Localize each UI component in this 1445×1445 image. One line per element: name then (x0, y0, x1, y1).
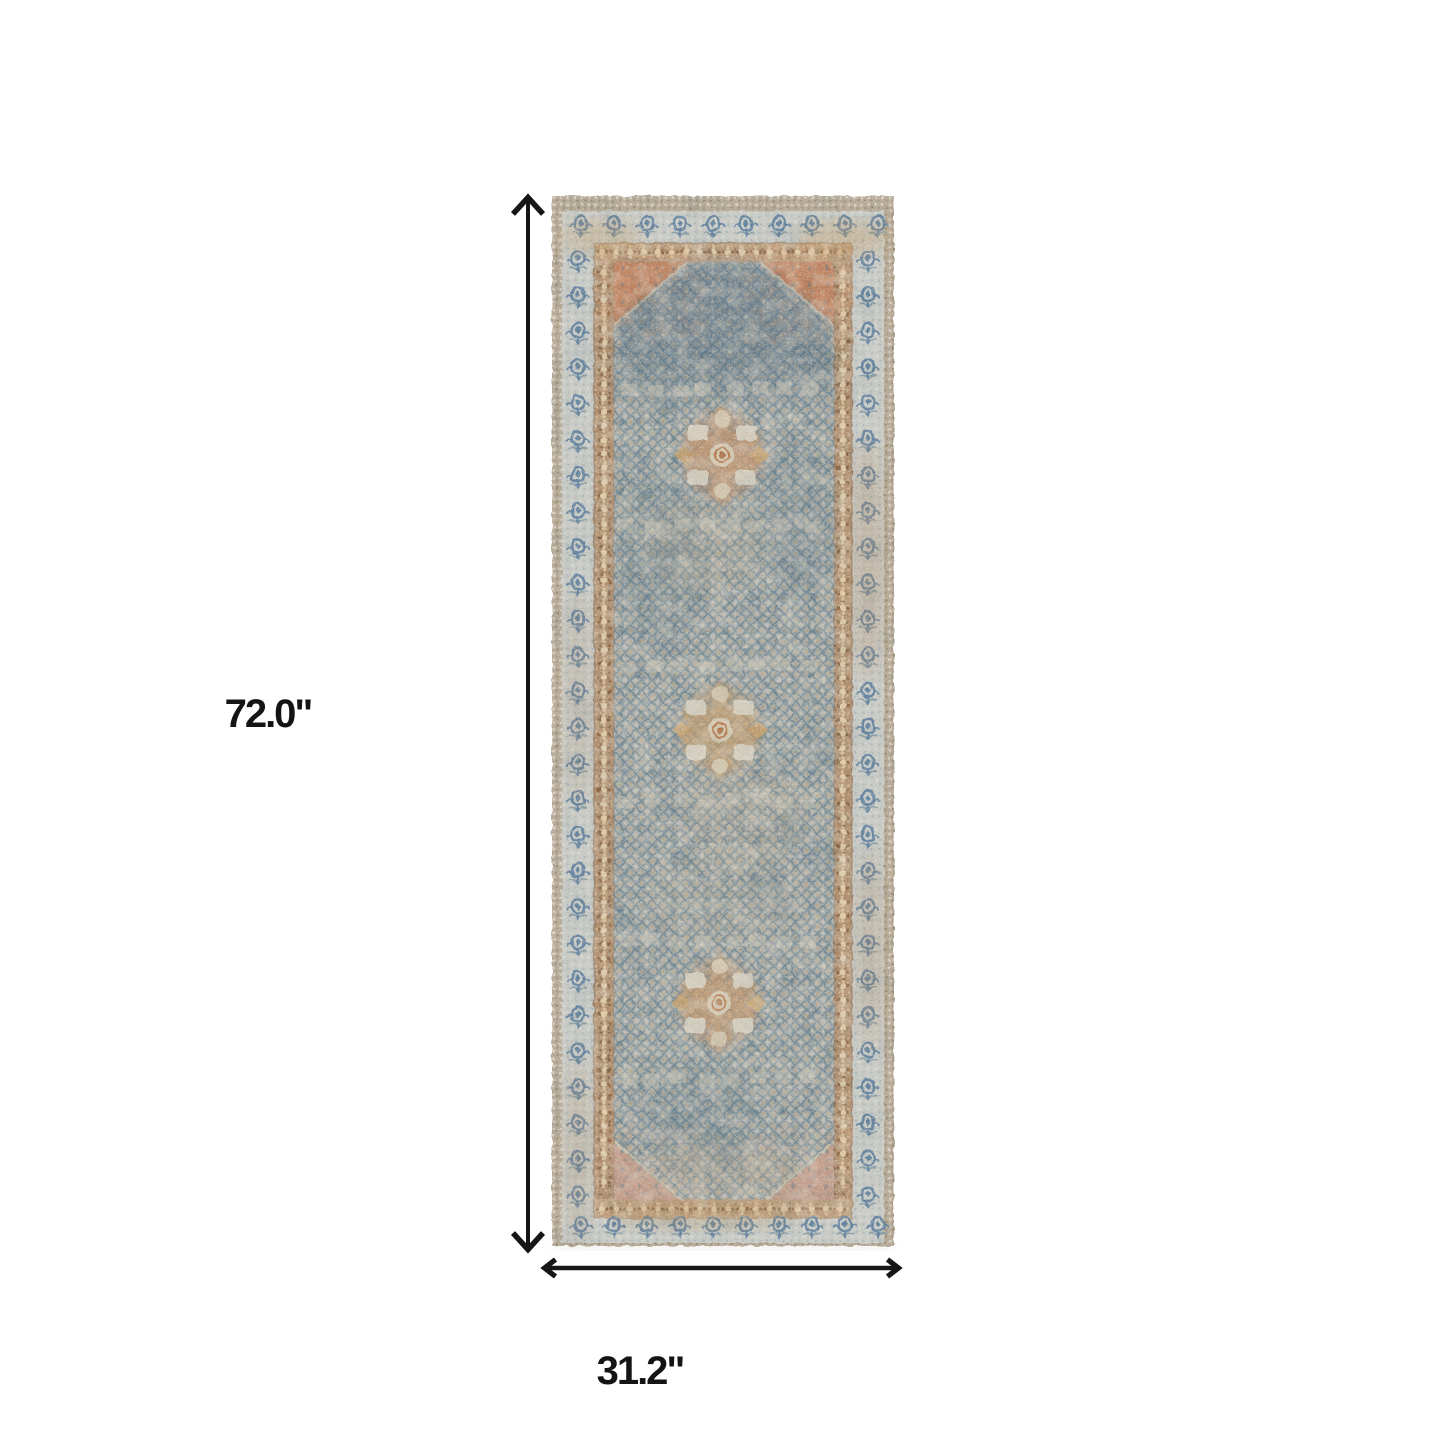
svg-text:31.2": 31.2" (597, 1349, 684, 1393)
svg-text:72.0": 72.0" (225, 692, 312, 736)
